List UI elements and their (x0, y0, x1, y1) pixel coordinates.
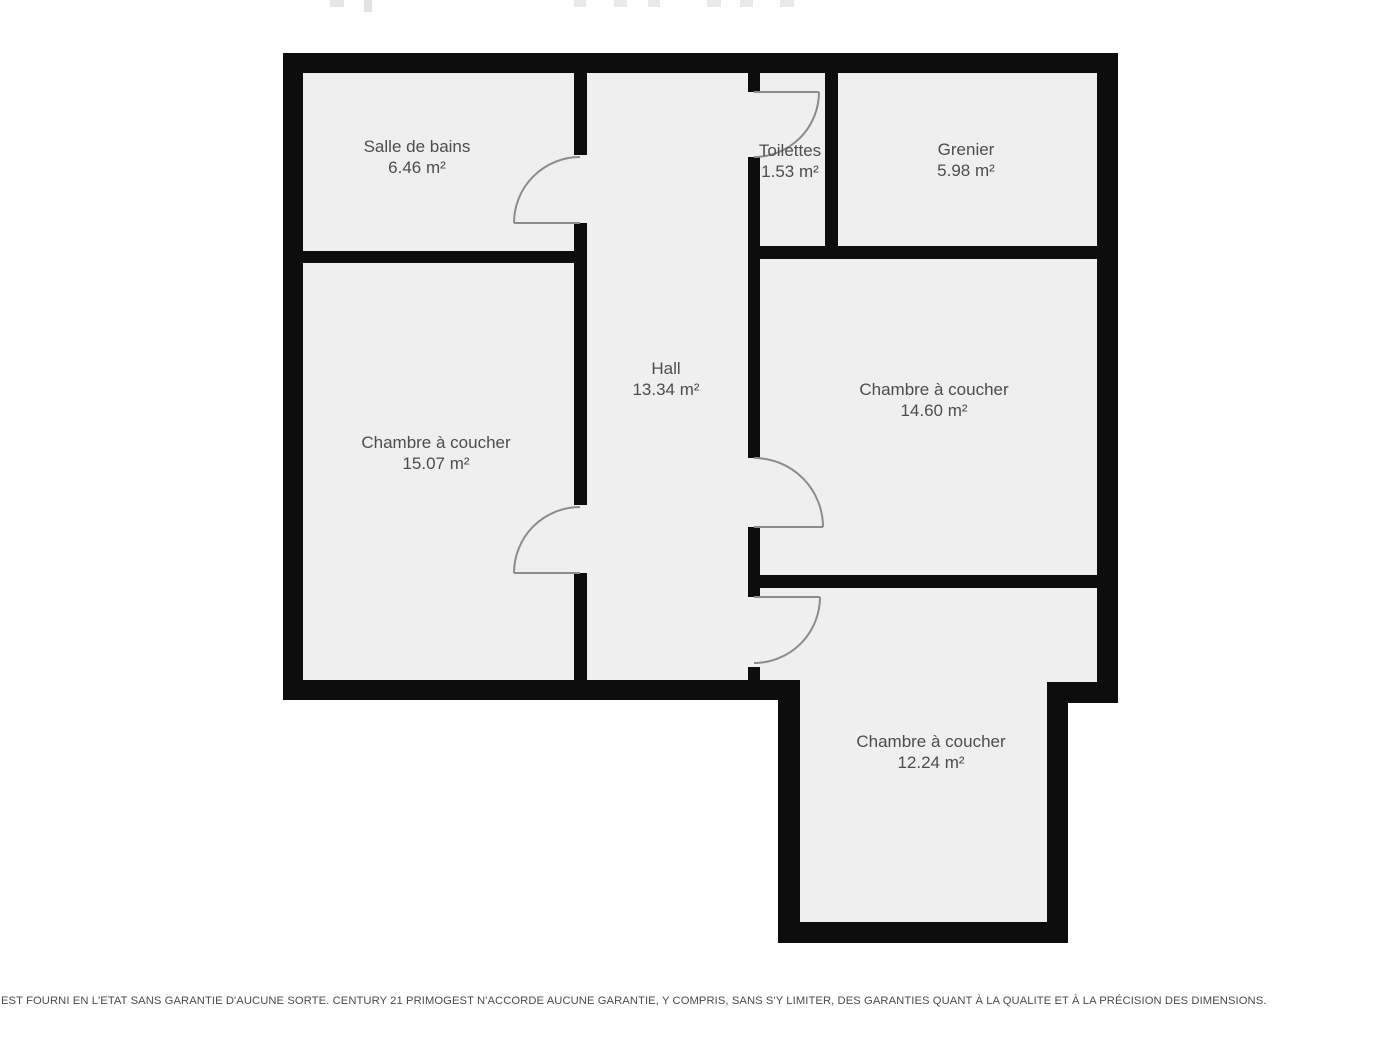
door-swing-overlay (0, 0, 1400, 1050)
room-name: Salle de bains (364, 136, 471, 157)
room-area: 13.34 m² (632, 379, 699, 400)
room-area: 1.53 m² (759, 161, 821, 182)
room-label-chambre-1224: Chambre à coucher 12.24 m² (856, 731, 1005, 773)
door-arc-chambre-1507 (514, 507, 580, 573)
room-label-chambre-1460: Chambre à coucher 14.60 m² (859, 379, 1008, 421)
room-area: 15.07 m² (361, 453, 510, 474)
room-name: Grenier (937, 139, 995, 160)
floorplan-canvas: Salle de bains 6.46 m² Toilettes 1.53 m²… (0, 0, 1400, 1050)
room-name: Chambre à coucher (856, 731, 1005, 752)
room-label-hall: Hall 13.34 m² (632, 358, 699, 400)
room-name: Hall (632, 358, 699, 379)
room-label-grenier: Grenier 5.98 m² (937, 139, 995, 181)
room-area: 5.98 m² (937, 160, 995, 181)
room-label-chambre-1507: Chambre à coucher 15.07 m² (361, 432, 510, 474)
room-name: Chambre à coucher (859, 379, 1008, 400)
door-arc-chambre-1460 (754, 458, 823, 527)
room-name: Chambre à coucher (361, 432, 510, 453)
room-label-toilettes: Toilettes 1.53 m² (759, 140, 821, 182)
room-area: 12.24 m² (856, 752, 1005, 773)
room-area: 6.46 m² (364, 157, 471, 178)
door-arc-salle-de-bains (514, 157, 580, 223)
room-label-salle-de-bains: Salle de bains 6.46 m² (364, 136, 471, 178)
room-name: Toilettes (759, 140, 821, 161)
door-arc-chambre-1224 (754, 597, 820, 663)
room-area: 14.60 m² (859, 400, 1008, 421)
disclaimer-text: EST FOURNI EN L'ETAT SANS GARANTIE D'AUC… (1, 995, 1266, 1007)
